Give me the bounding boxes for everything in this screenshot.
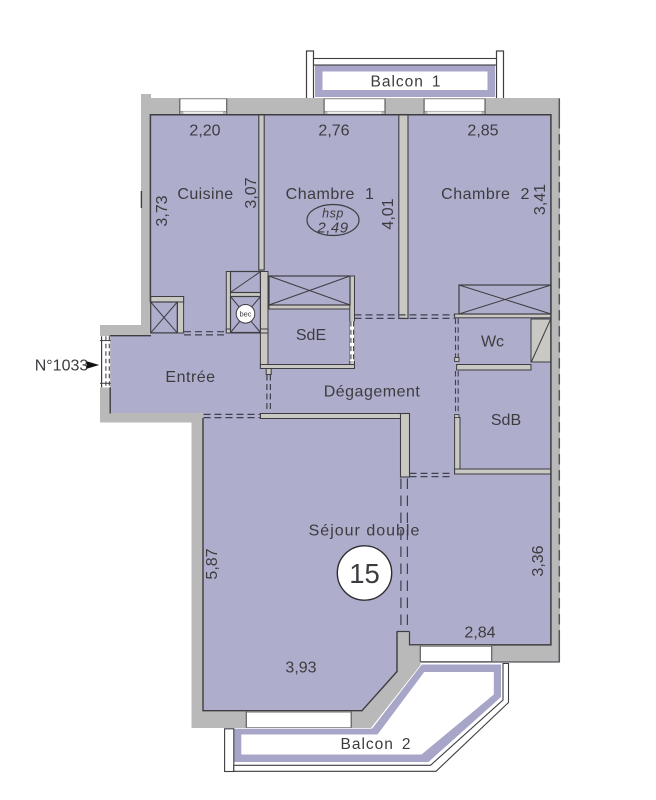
svg-text:SdB: SdB [491,412,521,429]
svg-text:Wc: Wc [481,333,504,350]
svg-text:SdE: SdE [296,327,326,344]
svg-text:Entrée: Entrée [165,369,215,386]
svg-text:2,20: 2,20 [189,122,220,139]
svg-text:hsp: hsp [322,207,344,221]
svg-text:3,41: 3,41 [532,184,549,215]
svg-text:3,07: 3,07 [243,177,260,208]
svg-text:3,93: 3,93 [285,660,316,677]
svg-text:bec: bec [239,310,251,319]
svg-text:3,36: 3,36 [530,545,547,576]
svg-text:2,84: 2,84 [464,625,495,642]
svg-text:N°1033: N°1033 [35,357,89,374]
svg-text:Dégagement: Dégagement [324,384,421,401]
svg-text:4,01: 4,01 [380,198,397,229]
svg-text:2,76: 2,76 [318,122,349,139]
svg-text:Cuisine: Cuisine [177,186,233,203]
svg-text:2,85: 2,85 [467,122,498,139]
svg-text:Séjour double: Séjour double [309,523,421,540]
svg-text:5,87: 5,87 [204,548,221,579]
svg-text:15: 15 [349,558,380,589]
svg-text:3,73: 3,73 [154,195,171,226]
svg-text:2,49: 2,49 [316,220,348,237]
